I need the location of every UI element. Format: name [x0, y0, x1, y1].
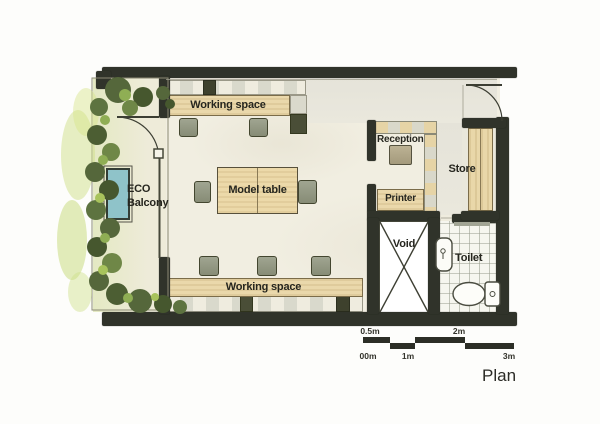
toilet-shelf [454, 222, 490, 226]
entrance-door-swing-icon [466, 85, 502, 121]
scale-label-1m: 1m [398, 351, 418, 361]
label-eco: ECO [127, 183, 150, 195]
scale-bar-segment [363, 337, 390, 343]
label-toilet: Toilet [455, 252, 482, 264]
sink-icon [436, 238, 452, 271]
label-void: Void [379, 238, 429, 250]
label-working-space-bottom: Working space [164, 281, 363, 293]
label-working-space-top: Working space [166, 99, 290, 111]
floor-plan-canvas: Working space Model table Working space … [0, 0, 600, 424]
scale-label-00m: 00m [356, 351, 380, 361]
scale-bar-segment [465, 343, 514, 349]
scale-bar-segment [415, 337, 465, 343]
label-model-table: Model table [217, 184, 298, 196]
label-store: Store [443, 163, 481, 175]
void-cross-icon [380, 222, 428, 312]
label-reception: Reception [377, 134, 423, 146]
page-title: Plan [482, 366, 516, 386]
label-printer: Printer [377, 193, 424, 205]
label-balcony: Balcony [127, 197, 168, 209]
scale-bar-segment [390, 343, 415, 349]
scale-label-2m: 2m [448, 326, 470, 336]
balcony-door-swing-icon [117, 117, 159, 159]
toilet-icon [453, 282, 500, 306]
scale-label-0-5m: 0.5m [357, 326, 383, 336]
scale-label-3m: 3m [498, 351, 520, 361]
